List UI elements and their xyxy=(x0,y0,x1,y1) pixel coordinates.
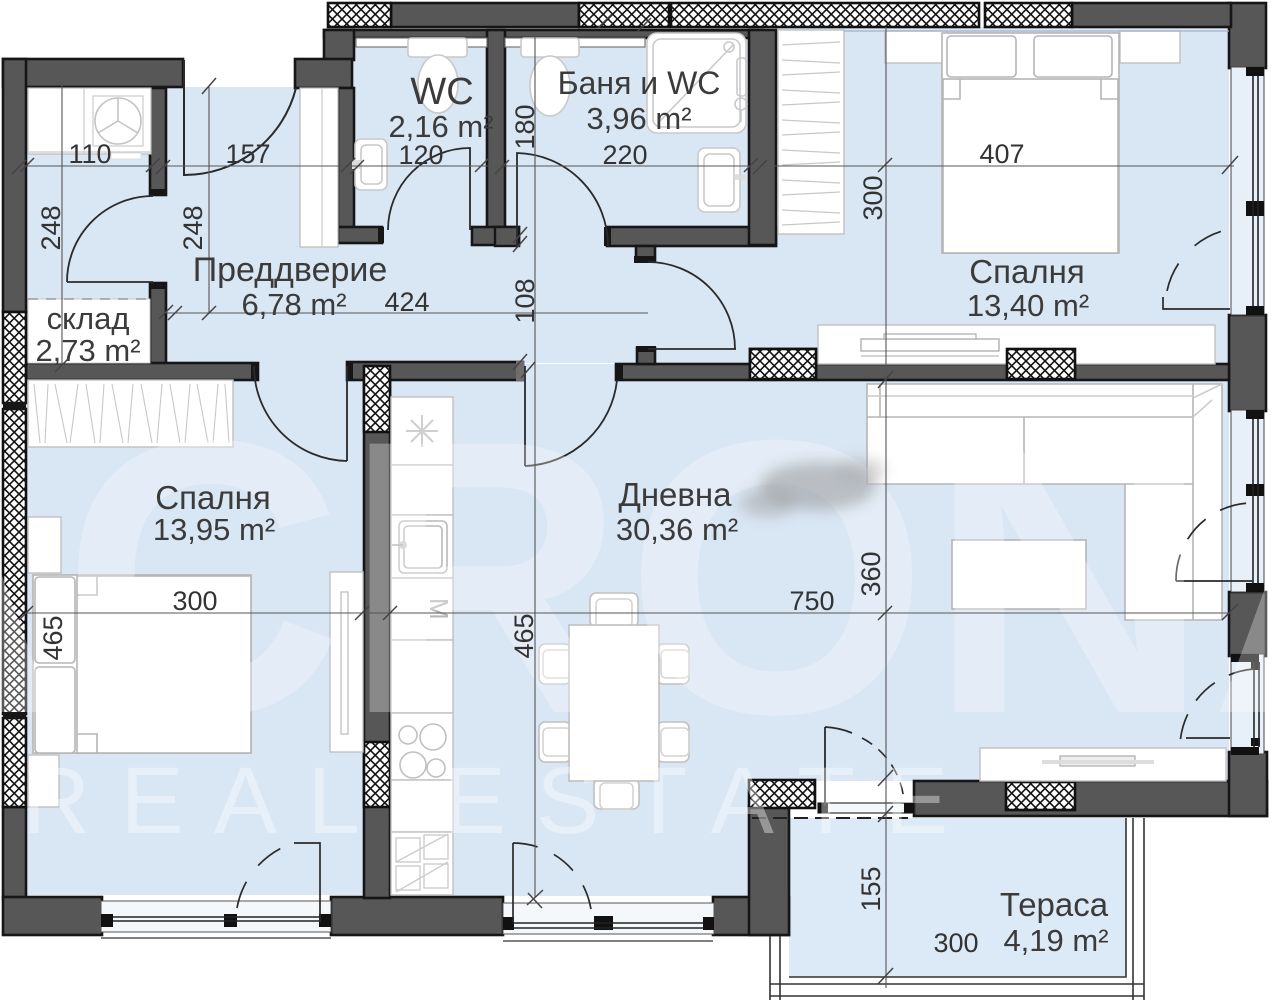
svg-text:4,19 m²: 4,19 m² xyxy=(1003,923,1108,958)
svg-text:склад: склад xyxy=(47,301,130,336)
svg-text:13,40 m²: 13,40 m² xyxy=(967,288,1089,323)
svg-text:Тераса: Тераса xyxy=(1000,886,1109,923)
svg-text:M: M xyxy=(424,598,454,620)
svg-text:157: 157 xyxy=(225,139,270,169)
svg-text:110: 110 xyxy=(68,139,111,169)
svg-text:Спалня: Спалня xyxy=(155,479,270,516)
svg-text:Баня и WC: Баня и WC xyxy=(558,65,721,101)
svg-text:750: 750 xyxy=(789,586,834,616)
svg-text:Дневна: Дневна xyxy=(618,476,732,513)
svg-text:108: 108 xyxy=(510,278,540,323)
svg-text:180: 180 xyxy=(510,104,540,149)
svg-text:360: 360 xyxy=(856,551,886,596)
svg-text:155: 155 xyxy=(856,866,886,911)
svg-text:465: 465 xyxy=(509,613,539,658)
svg-text:WC: WC xyxy=(410,71,473,113)
svg-text:220: 220 xyxy=(602,140,647,170)
svg-text:2,16 m²: 2,16 m² xyxy=(388,109,493,144)
svg-text:300: 300 xyxy=(858,175,888,220)
svg-text:13,95 m²: 13,95 m² xyxy=(153,512,275,547)
svg-text:Спалня: Спалня xyxy=(969,253,1084,290)
svg-text:424: 424 xyxy=(384,287,429,317)
svg-text:6,78 m²: 6,78 m² xyxy=(241,287,346,322)
svg-text:2,73 m²: 2,73 m² xyxy=(35,333,140,368)
svg-text:248: 248 xyxy=(178,205,208,250)
svg-text:120: 120 xyxy=(398,140,443,170)
svg-text:300: 300 xyxy=(933,928,978,958)
svg-text:Преддверие: Преддверие xyxy=(193,251,388,289)
svg-text:407: 407 xyxy=(979,139,1024,169)
svg-text:465: 465 xyxy=(38,615,68,660)
svg-text:248: 248 xyxy=(36,205,66,250)
svg-text:300: 300 xyxy=(172,586,217,616)
svg-text:30,36 m²: 30,36 m² xyxy=(616,512,738,547)
svg-text:3,96 m²: 3,96 m² xyxy=(586,101,691,136)
